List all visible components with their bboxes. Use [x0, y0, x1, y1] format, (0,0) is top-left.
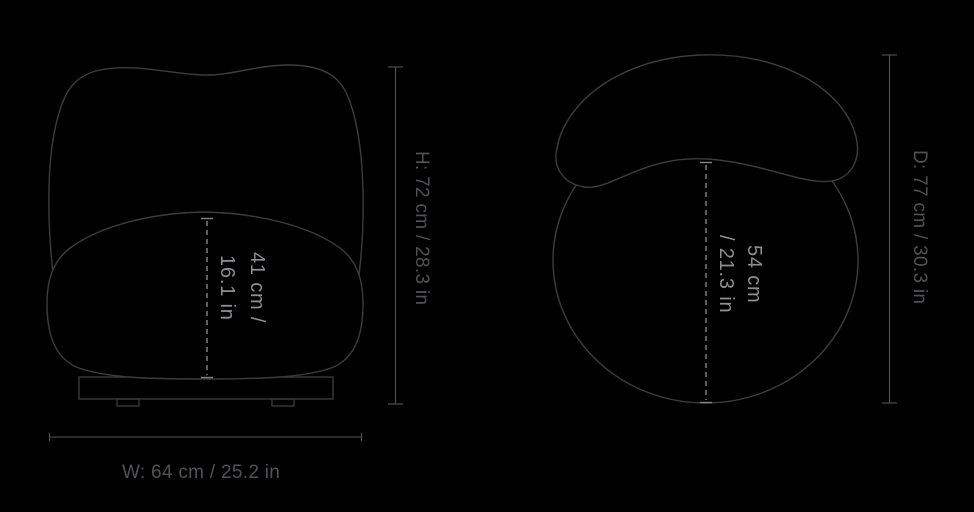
dimension-diagram: 41 cm / 16.1 in H: 72 cm / 28.3 in W: 64… [0, 0, 974, 512]
seat-depth-cm: 54 cm [740, 212, 768, 336]
depth-value: D: 77 cm / 30.3 in [906, 150, 932, 304]
seat-height-in: 16.1 in [212, 233, 242, 343]
line-art [0, 0, 974, 512]
depth-dimension-line [882, 55, 897, 403]
width-dimension-line [50, 433, 362, 441]
seat-height-cm: 41 cm / [242, 233, 272, 343]
seat-depth-in: / 21.3 in [712, 212, 740, 336]
seat-height-value: 41 cm / 16.1 in [212, 233, 272, 343]
front-foot-left [117, 399, 139, 406]
front-seat-outline [47, 212, 363, 379]
front-base-outline [79, 377, 333, 399]
front-foot-right [272, 399, 294, 406]
width-value: W: 64 cm / 25.2 in [122, 462, 280, 484]
height-value: H: 72 cm / 28.3 in [408, 151, 434, 305]
seat-depth-value: 54 cm / 21.3 in [712, 212, 768, 336]
height-dimension-line [388, 67, 403, 404]
